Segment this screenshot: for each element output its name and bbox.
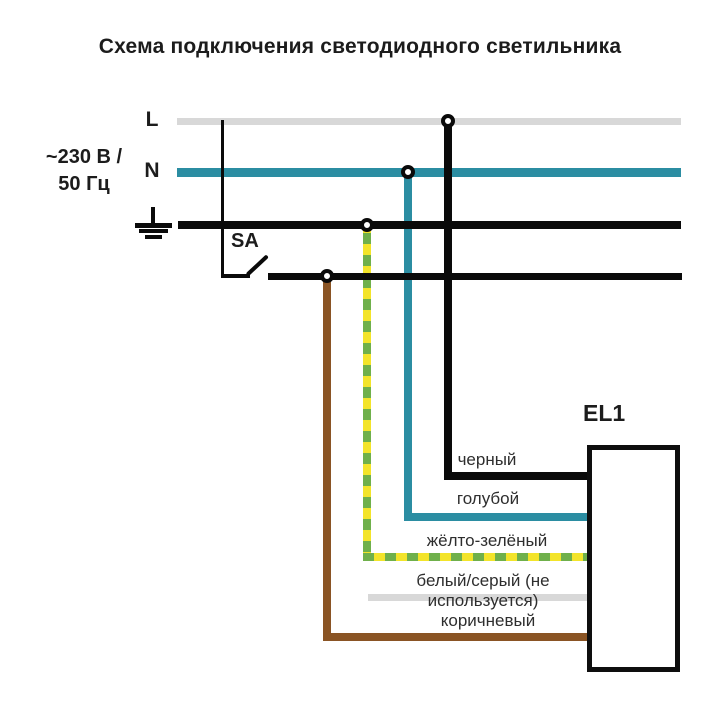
ground-bus-line (178, 221, 681, 229)
yellow-green-wire-horizontal (363, 553, 591, 561)
brown-wire-horizontal (323, 633, 591, 641)
wire-label-brown: коричневый (388, 611, 588, 631)
neutral-bus-label: N (140, 159, 164, 183)
supply-rating-line1: ~230 В / (22, 144, 146, 171)
switch-feed-line (221, 120, 224, 278)
wire-label-white-gray: белый/серый (не используется) (373, 571, 593, 611)
junction-dot-phase (441, 114, 455, 128)
junction-dot-ground (360, 218, 374, 232)
switch-blade (246, 254, 269, 276)
ground-symbol-bar (145, 235, 162, 239)
luminaire-box (587, 445, 680, 672)
supply-rating-line2: 50 Гц (22, 171, 146, 198)
junction-dot-neutral (401, 165, 415, 179)
neutral-bus-line (177, 168, 681, 177)
ground-symbol-bar (139, 229, 168, 233)
junction-dot-switched (320, 269, 334, 283)
luminaire-label: EL1 (583, 400, 625, 427)
supply-rating-label: ~230 В / 50 Гц (22, 144, 146, 198)
black-wire-horizontal (444, 472, 591, 480)
phase-bus-line (177, 118, 681, 125)
blue-wire-horizontal (404, 513, 591, 521)
phase-bus-label: L (140, 108, 164, 132)
diagram-title: Схема подключения светодиодного светильн… (0, 35, 720, 59)
wiring-diagram: Схема подключения светодиодного светильн… (0, 0, 720, 720)
switch-label: SA (231, 230, 259, 253)
brown-wire-vertical (323, 274, 331, 641)
ground-symbol-bar (135, 223, 172, 228)
wire-label-blue: голубой (388, 489, 588, 509)
wire-label-black: черный (387, 450, 587, 470)
black-wire-vertical (444, 118, 452, 480)
wire-label-yellow-green: жёлто-зелёный (387, 531, 587, 551)
